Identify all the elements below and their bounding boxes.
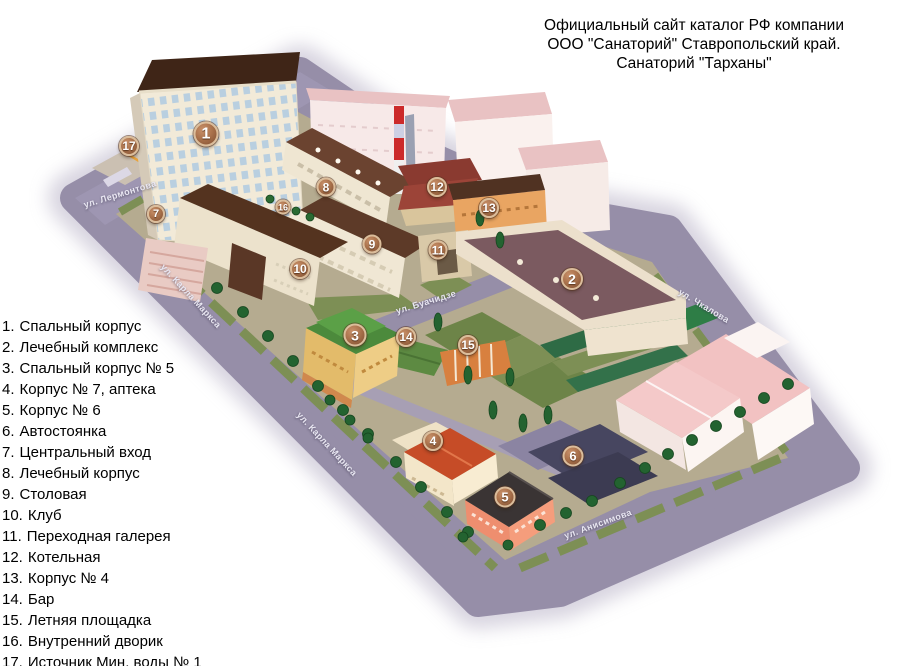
legend-item-label: Переходная галерея [27, 528, 171, 545]
legend-item-10: 10.Клуб [2, 505, 202, 526]
legend-item-number: 12. [2, 549, 23, 566]
map-marker-9[interactable]: 9 [363, 235, 382, 254]
legend-item-9: 9.Столовая [2, 484, 202, 505]
legend-item-label: Лечебный комплекс [20, 339, 159, 356]
map-marker-15[interactable]: 15 [458, 335, 478, 355]
legend-item-number: 2. [2, 339, 15, 356]
legend-item-number: 15. [2, 612, 23, 629]
legend-item-number: 8. [2, 465, 15, 482]
legend-item-label: Котельная [28, 549, 101, 566]
legend-item-number: 11. [2, 528, 22, 545]
map-marker-14[interactable]: 14 [396, 327, 416, 347]
map-marker-5[interactable]: 5 [495, 487, 516, 508]
legend: 1.Спальный корпус2.Лечебный комплекс3.Сп… [2, 316, 202, 666]
title-line-2: ООО "Санаторий" Ставропольский край. [488, 35, 900, 54]
legend-item-6: 6.Автостоянка [2, 421, 202, 442]
legend-item-5: 5.Корпус № 6 [2, 400, 202, 421]
legend-item-number: 17. [2, 654, 23, 666]
map-marker-11[interactable]: 11 [429, 241, 448, 260]
legend-item-number: 5. [2, 402, 15, 419]
legend-item-label: Корпус № 6 [20, 402, 101, 419]
legend-item-1: 1.Спальный корпус [2, 316, 202, 337]
legend-item-17: 17.Источник Мин. воды № 1 [2, 652, 202, 666]
map-marker-7[interactable]: 7 [147, 205, 165, 223]
legend-item-3: 3.Спальный корпус № 5 [2, 358, 202, 379]
legend-item-label: Спальный корпус [20, 318, 142, 335]
legend-item-label: Клуб [28, 507, 62, 524]
map-marker-6[interactable]: 6 [563, 446, 584, 467]
legend-item-16: 16.Внутренний дворик [2, 631, 202, 652]
title-line-3: Санаторий "Тарханы" [488, 54, 900, 73]
map-marker-10[interactable]: 10 [290, 259, 310, 279]
legend-item-label: Лечебный корпус [20, 465, 140, 482]
map-marker-2[interactable]: 2 [561, 268, 583, 290]
legend-item-label: Спальный корпус № 5 [20, 360, 175, 377]
legend-item-number: 4. [2, 381, 15, 398]
map-marker-16[interactable]: 16 [276, 200, 291, 215]
legend-item-14: 14.Бар [2, 589, 202, 610]
legend-item-15: 15.Летняя площадка [2, 610, 202, 631]
map-marker-8[interactable]: 8 [317, 178, 336, 197]
legend-item-11: 11.Переходная галерея [2, 526, 202, 547]
page: ул. Лермонтоваул. Карла Марксаул. Карла … [0, 0, 900, 666]
map-marker-13[interactable]: 13 [479, 198, 499, 218]
page-title: Официальный сайт каталог РФ компании ООО… [488, 16, 900, 73]
legend-item-label: Корпус № 7, аптека [20, 381, 156, 398]
legend-item-number: 6. [2, 423, 15, 440]
legend-item-13: 13.Корпус № 4 [2, 568, 202, 589]
legend-item-number: 3. [2, 360, 15, 377]
title-line-1: Официальный сайт каталог РФ компании [488, 16, 900, 35]
legend-item-number: 16. [2, 633, 23, 650]
legend-item-label: Автостоянка [20, 423, 107, 440]
legend-item-label: Источник Мин. воды № 1 [28, 654, 202, 666]
legend-item-number: 1. [2, 318, 15, 335]
legend-item-label: Центральный вход [20, 444, 152, 461]
legend-item-number: 10. [2, 507, 23, 524]
legend-item-number: 14. [2, 591, 23, 608]
legend-item-label: Внутренний дворик [28, 633, 163, 650]
legend-item-12: 12.Котельная [2, 547, 202, 568]
legend-item-8: 8.Лечебный корпус [2, 463, 202, 484]
legend-item-number: 7. [2, 444, 15, 461]
map-marker-3[interactable]: 3 [344, 324, 367, 347]
map-marker-17[interactable]: 17 [119, 136, 139, 156]
legend-item-label: Столовая [20, 486, 87, 503]
legend-item-7: 7.Центральный вход [2, 442, 202, 463]
legend-item-2: 2.Лечебный комплекс [2, 337, 202, 358]
legend-item-4: 4.Корпус № 7, аптека [2, 379, 202, 400]
legend-item-label: Летняя площадка [28, 612, 151, 629]
map-marker-4[interactable]: 4 [423, 431, 443, 451]
legend-item-label: Бар [28, 591, 55, 608]
map-marker-12[interactable]: 12 [427, 177, 447, 197]
legend-item-number: 9. [2, 486, 15, 503]
legend-item-number: 13. [2, 570, 23, 587]
legend-item-label: Корпус № 4 [28, 570, 109, 587]
map-marker-1[interactable]: 1 [194, 122, 219, 147]
